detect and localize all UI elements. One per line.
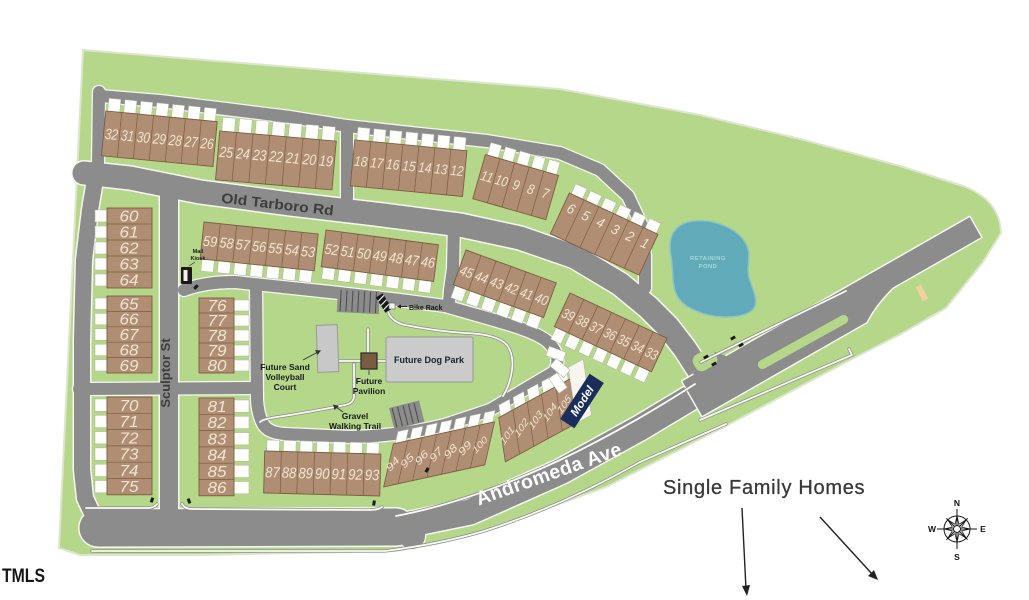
svg-text:24: 24 <box>234 145 250 163</box>
svg-text:80: 80 <box>208 358 227 375</box>
svg-text:RETAINING: RETAINING <box>690 256 726 262</box>
svg-text:90: 90 <box>315 466 331 483</box>
svg-text:61: 61 <box>120 225 139 242</box>
svg-text:20: 20 <box>301 151 317 169</box>
svg-text:Kiosk: Kiosk <box>191 256 207 262</box>
svg-text:Future Dog Park: Future Dog Park <box>394 355 465 365</box>
svg-text:12: 12 <box>450 162 465 179</box>
svg-text:26: 26 <box>199 135 215 153</box>
svg-text:13: 13 <box>434 160 449 177</box>
svg-text:27: 27 <box>183 133 199 151</box>
svg-text:60: 60 <box>120 209 139 226</box>
svg-text:64: 64 <box>120 273 139 290</box>
svg-text:28: 28 <box>167 132 183 150</box>
svg-text:86: 86 <box>208 480 227 497</box>
svg-text:93: 93 <box>364 467 380 484</box>
svg-text:84: 84 <box>208 448 227 465</box>
svg-text:69: 69 <box>120 358 139 375</box>
svg-text:75: 75 <box>120 479 139 496</box>
svg-text:19: 19 <box>318 153 334 171</box>
svg-text:55: 55 <box>267 241 283 258</box>
svg-text:23: 23 <box>251 147 267 165</box>
svg-text:48: 48 <box>388 250 404 268</box>
svg-text:31: 31 <box>120 127 135 145</box>
svg-text:18: 18 <box>354 153 369 170</box>
svg-text:91: 91 <box>331 466 346 483</box>
svg-text:25: 25 <box>218 144 234 162</box>
svg-text:92: 92 <box>348 466 364 483</box>
svg-text:62: 62 <box>120 241 139 258</box>
svg-text:87: 87 <box>265 464 281 481</box>
svg-text:82: 82 <box>208 415 227 432</box>
svg-text:W: W <box>928 524 937 534</box>
svg-text:88: 88 <box>282 465 298 482</box>
svg-text:14: 14 <box>418 159 433 176</box>
svg-text:Court: Court <box>274 382 297 392</box>
svg-text:54: 54 <box>284 242 300 259</box>
svg-text:POND: POND <box>699 264 718 270</box>
svg-text:Mail: Mail <box>193 249 204 255</box>
svg-text:63: 63 <box>120 257 139 274</box>
svg-text:72: 72 <box>120 430 139 447</box>
svg-text:58: 58 <box>219 235 235 252</box>
svg-text:85: 85 <box>208 464 227 481</box>
svg-text:83: 83 <box>208 431 227 448</box>
svg-text:74: 74 <box>120 463 139 480</box>
svg-text:Single Family Homes: Single Family Homes <box>663 477 865 499</box>
svg-text:22: 22 <box>268 148 284 166</box>
svg-text:Future: Future <box>356 376 383 386</box>
svg-text:S: S <box>954 552 960 562</box>
svg-text:70: 70 <box>120 398 139 415</box>
svg-text:30: 30 <box>136 129 151 147</box>
svg-text:N: N <box>954 498 960 508</box>
svg-text:73: 73 <box>120 447 139 464</box>
svg-text:E: E <box>980 524 986 534</box>
svg-text:17: 17 <box>370 154 386 171</box>
svg-text:50: 50 <box>356 246 372 264</box>
svg-text:32: 32 <box>104 126 119 144</box>
svg-text:Volleyball: Volleyball <box>265 372 304 382</box>
svg-text:53: 53 <box>300 244 316 261</box>
svg-text:Walking Trail: Walking Trail <box>329 421 381 431</box>
svg-text:29: 29 <box>151 130 167 148</box>
svg-text:52: 52 <box>324 242 340 260</box>
svg-text:Bike Rack: Bike Rack <box>409 305 443 312</box>
svg-text:49: 49 <box>372 248 388 266</box>
svg-text:Pavilion: Pavilion <box>353 386 386 396</box>
svg-text:Sculptor St: Sculptor St <box>158 338 173 408</box>
svg-text:16: 16 <box>385 156 400 173</box>
svg-text:15: 15 <box>402 157 417 174</box>
svg-text:81: 81 <box>208 399 227 416</box>
svg-text:71: 71 <box>120 414 139 431</box>
svg-text:Future Sand: Future Sand <box>260 362 310 372</box>
svg-text:51: 51 <box>340 244 356 262</box>
svg-text:56: 56 <box>251 239 267 256</box>
svg-text:89: 89 <box>298 465 314 482</box>
svg-text:59: 59 <box>202 234 218 251</box>
svg-text:Gravel: Gravel <box>342 411 368 421</box>
svg-text:57: 57 <box>235 237 251 254</box>
svg-text:TMLS: TMLS <box>2 566 45 587</box>
svg-text:21: 21 <box>284 150 300 168</box>
